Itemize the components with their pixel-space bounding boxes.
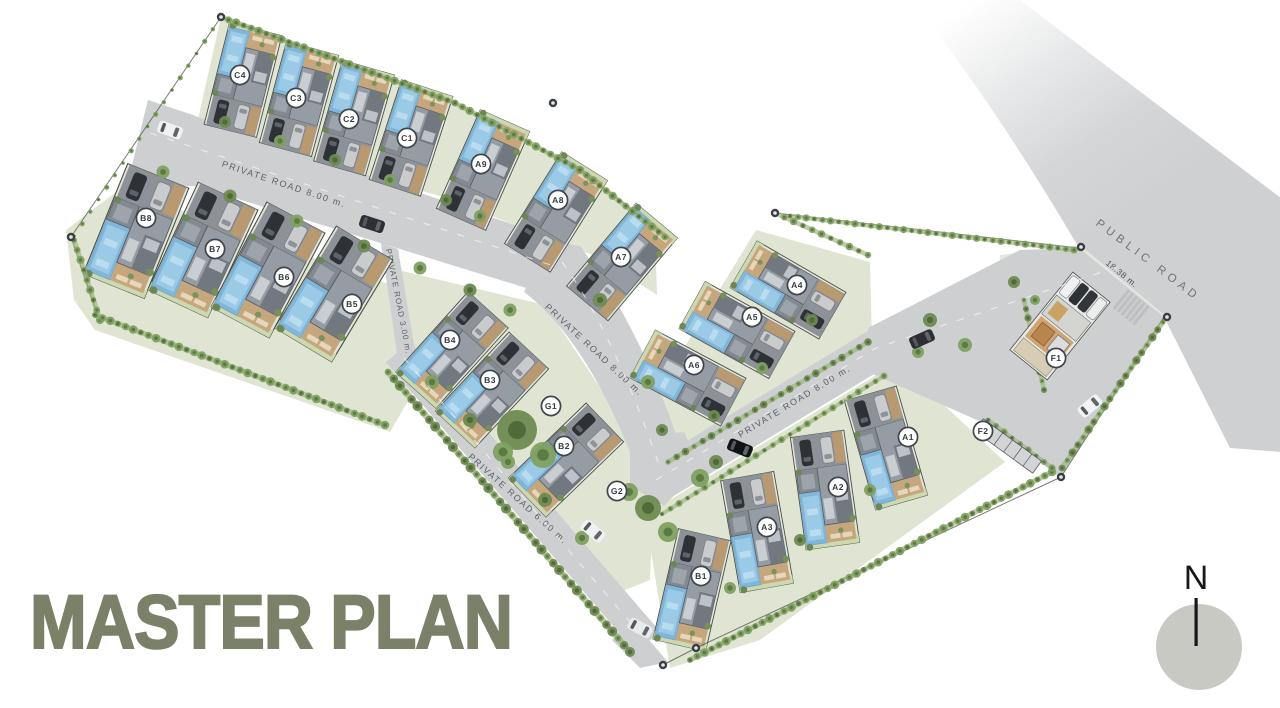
svg-text:B5: B5 — [346, 299, 358, 309]
svg-text:C4: C4 — [234, 70, 246, 80]
svg-text:C1: C1 — [401, 133, 413, 143]
svg-text:A5: A5 — [746, 312, 758, 322]
svg-text:A3: A3 — [761, 522, 773, 532]
svg-text:B3: B3 — [484, 375, 496, 385]
svg-text:B7: B7 — [209, 244, 221, 254]
svg-text:F1: F1 — [1051, 353, 1062, 363]
svg-text:F2: F2 — [978, 426, 989, 436]
svg-text:A8: A8 — [552, 195, 564, 205]
svg-text:A2: A2 — [832, 482, 844, 492]
svg-text:B2: B2 — [558, 441, 570, 451]
svg-text:G1: G1 — [545, 401, 557, 411]
svg-text:G2: G2 — [611, 486, 623, 496]
svg-text:B4: B4 — [444, 335, 456, 345]
svg-text:A6: A6 — [688, 360, 700, 370]
svg-text:C3: C3 — [290, 93, 302, 103]
svg-text:MASTER PLAN: MASTER PLAN — [30, 580, 512, 665]
svg-text:A7: A7 — [615, 252, 627, 262]
svg-text:B8: B8 — [140, 213, 152, 223]
svg-text:B1: B1 — [695, 571, 707, 581]
svg-text:A9: A9 — [475, 159, 487, 169]
svg-text:B6: B6 — [278, 272, 290, 282]
svg-text:N: N — [1184, 559, 1209, 597]
svg-text:A1: A1 — [902, 432, 914, 442]
svg-text:A4: A4 — [791, 280, 803, 290]
svg-text:C2: C2 — [343, 114, 355, 124]
